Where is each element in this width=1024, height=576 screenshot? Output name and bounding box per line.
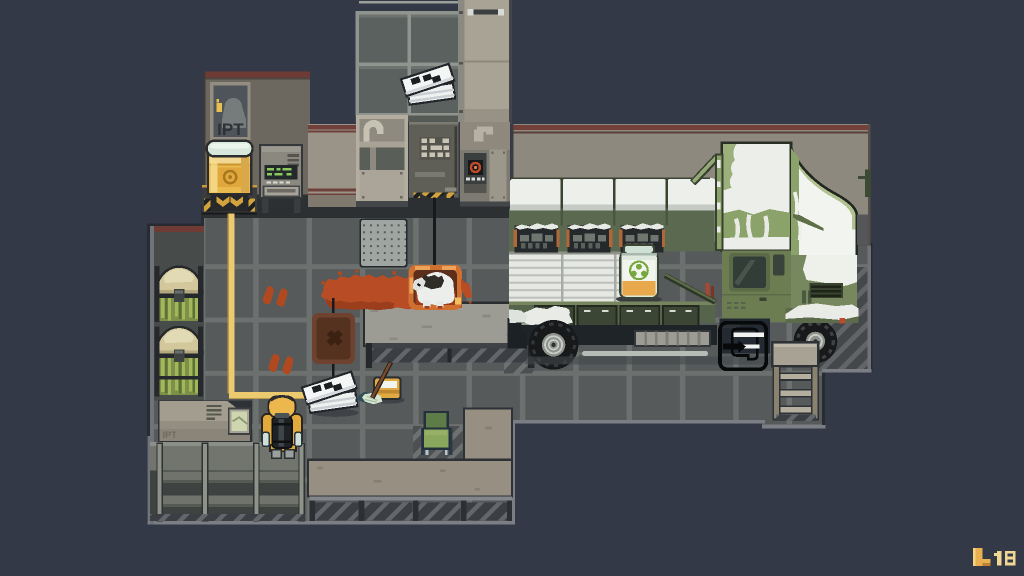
svg-text:IPT: IPT <box>163 430 178 440</box>
svg-text:IPT: IPT <box>217 120 244 139</box>
